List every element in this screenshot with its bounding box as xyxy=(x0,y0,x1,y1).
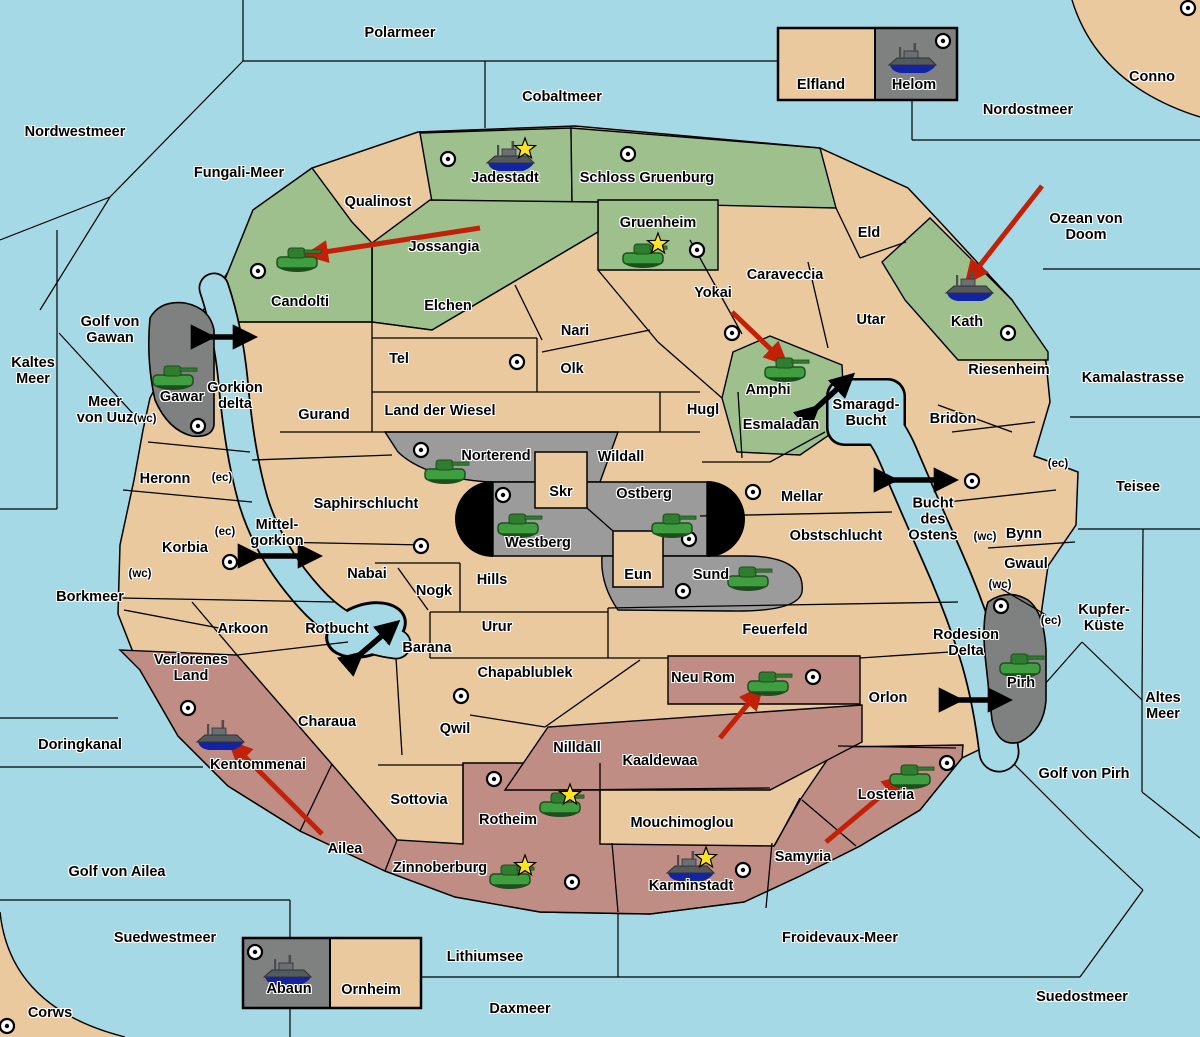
territory-label-esmaladan[interactable]: Esmaladan xyxy=(743,417,820,433)
territory-label-gruenheim[interactable]: Gruenheim xyxy=(620,215,697,231)
territory-label-corws[interactable]: Corws xyxy=(28,1005,72,1021)
territory-label-feuerfeld[interactable]: Feuerfeld xyxy=(742,622,807,638)
sea-zone-label-lithiumsee[interactable]: Lithiumsee xyxy=(447,949,524,965)
sea-zone-label-daxmeer[interactable]: Daxmeer xyxy=(489,1001,550,1017)
territory-label-mouchimoglou[interactable]: Mouchimoglou xyxy=(630,815,733,831)
sea-zone-label-suedostmeer[interactable]: Suedostmeer xyxy=(1036,989,1128,1005)
sea-zone-label-ozean-von-doom[interactable]: Ozean von Doom xyxy=(1029,211,1143,243)
territory-label-neu-rom[interactable]: Neu Rom xyxy=(671,670,735,686)
territory-label-jossangia[interactable]: Jossangia xyxy=(409,239,480,255)
coast-marker: (ec) xyxy=(212,472,232,484)
territory-label-schloss-gruenburg[interactable]: Schloss Gruenburg xyxy=(580,170,715,186)
territory-label-land-der-wiesel[interactable]: Land der Wiesel xyxy=(384,403,495,419)
territory-label-abaun[interactable]: Abaun xyxy=(266,981,311,997)
territory-label-urur[interactable]: Urur xyxy=(482,619,513,635)
territory-label-bridon[interactable]: Bridon xyxy=(930,411,977,427)
city-dot-icon xyxy=(736,863,750,877)
city-dot-icon xyxy=(725,326,739,340)
territory-label-eun[interactable]: Eun xyxy=(624,567,651,583)
territory-label-rotheim[interactable]: Rotheim xyxy=(479,812,537,828)
game-map xyxy=(0,0,1200,1037)
territory-label-losteria[interactable]: Losteria xyxy=(858,787,914,803)
territory-label-caraveccia[interactable]: Caraveccia xyxy=(747,267,824,283)
sea-zone-label-mittel-gorkion[interactable]: Mittel- gorkion xyxy=(250,517,303,549)
territory-label-conno[interactable]: Conno xyxy=(1129,69,1175,85)
territory-label-candolti[interactable]: Candolti xyxy=(271,294,329,310)
city-dot-icon xyxy=(690,243,704,257)
sea-zone-label-fungali-meer[interactable]: Fungali-Meer xyxy=(194,165,284,181)
sea-zone-label-golf-von-gawan[interactable]: Golf von Gawan xyxy=(81,314,140,346)
territory-label-nogk[interactable]: Nogk xyxy=(416,583,452,599)
territory-label-kaaldewaa[interactable]: Kaaldewaa xyxy=(623,753,698,769)
city-dot-icon xyxy=(565,875,579,889)
sea-zone-label-nordostmeer[interactable]: Nordostmeer xyxy=(983,102,1073,118)
sea-zone-label-teisee[interactable]: Teisee xyxy=(1116,479,1160,495)
territory-label-yokai[interactable]: Yokai xyxy=(694,285,732,301)
territory-label-ostberg[interactable]: Ostberg xyxy=(616,486,672,502)
city-dot-icon xyxy=(0,1019,14,1033)
territory-label-sottovia[interactable]: Sottovia xyxy=(390,792,447,808)
territory-label-gawar[interactable]: Gawar xyxy=(160,389,204,405)
territory-label-charaua[interactable]: Charaua xyxy=(298,714,356,730)
city-dot-icon xyxy=(414,539,428,553)
territory-label-hills[interactable]: Hills xyxy=(477,572,508,588)
territory-label-nabai[interactable]: Nabai xyxy=(347,566,387,582)
territory-label-chapablublek[interactable]: Chapablublek xyxy=(477,665,572,681)
city-dot-icon xyxy=(223,555,237,569)
sea-zone-label-rodesion-delta[interactable]: Rodesion Delta xyxy=(933,627,999,659)
territory-label-qwil[interactable]: Qwil xyxy=(440,721,471,737)
city-dot-icon xyxy=(965,474,979,488)
sea-zone-label-nordwestmeer[interactable]: Nordwestmeer xyxy=(25,124,126,140)
territory-label-utar[interactable]: Utar xyxy=(856,312,885,328)
sea-zone-label-borkmeer[interactable]: Borkmeer xyxy=(56,589,124,605)
sea-zone-label-kupfer-küste[interactable]: Kupfer- Küste xyxy=(1078,602,1130,634)
city-dot-icon xyxy=(496,488,510,502)
territory-label-elchen[interactable]: Elchen xyxy=(424,298,472,314)
city-dot-icon xyxy=(1001,326,1015,340)
territory-label-mellar[interactable]: Mellar xyxy=(781,489,823,505)
sea-zone-label-rotbucht[interactable]: Rotbucht xyxy=(305,621,369,637)
sea-zone-label-bucht-des-ostens[interactable]: Bucht des Ostens xyxy=(908,496,957,545)
city-dot-icon xyxy=(621,147,635,161)
city-dot-icon xyxy=(676,584,690,598)
city-dot-icon xyxy=(441,152,455,166)
territory-label-heronn[interactable]: Heronn xyxy=(140,471,191,487)
city-dot-icon xyxy=(746,485,760,499)
territory-label-barana[interactable]: Barana xyxy=(402,640,451,656)
coast-marker: (ec) xyxy=(1048,458,1068,470)
city-dot-icon xyxy=(487,772,501,786)
territory-label-samyria[interactable]: Samyria xyxy=(775,849,831,865)
territory-label-kentommenai[interactable]: Kentommenai xyxy=(210,757,306,773)
territory-label-norterend[interactable]: Norterend xyxy=(461,448,530,464)
city-dot-icon xyxy=(251,264,265,278)
city-dot-icon xyxy=(1181,1,1195,15)
city-dot-icon xyxy=(940,756,954,770)
sea-zone-label-kamalastrasse[interactable]: Kamalastrasse xyxy=(1082,370,1184,386)
sea-zone-label-suedwestmeer[interactable]: Suedwestmeer xyxy=(114,930,216,946)
territory-label-korbia[interactable]: Korbia xyxy=(162,540,208,556)
game-map-stage: PolarmeerNordwestmeerFungali-MeerCobaltm… xyxy=(0,0,1200,1037)
sea-zone-label-froidevaux-meer[interactable]: Froidevaux-Meer xyxy=(782,930,898,946)
city-dot-icon xyxy=(248,945,262,959)
territory-label-orlon[interactable]: Orlon xyxy=(869,690,908,706)
sea-zone-label-polarmeer[interactable]: Polarmeer xyxy=(365,25,436,41)
territory-label-gurand[interactable]: Gurand xyxy=(298,407,350,423)
city-dot-icon xyxy=(454,689,468,703)
city-dot-icon xyxy=(994,599,1008,613)
sea-zone-label-kaltes-meer[interactable]: Kaltes Meer xyxy=(11,355,55,387)
coast-marker: (ec) xyxy=(1041,615,1061,627)
territory-label-sund[interactable]: Sund xyxy=(693,567,729,583)
sea-zone-label-gorkion-delta[interactable]: Gorkion delta xyxy=(207,380,263,412)
territory-label-nari[interactable]: Nari xyxy=(561,323,589,339)
territory-label-eld[interactable]: Eld xyxy=(858,225,881,241)
coast-marker: (wc) xyxy=(989,579,1012,591)
territory-label-ailea[interactable]: Ailea xyxy=(328,841,363,857)
territory-label-ornheim[interactable]: Ornheim xyxy=(341,982,401,998)
coast-marker: (wc) xyxy=(974,531,997,543)
sea-zone-label-smaragd-bucht[interactable]: Smaragd- Bucht xyxy=(833,397,900,429)
territory-label-arkoon[interactable]: Arkoon xyxy=(218,621,269,637)
territory-label-pirh[interactable]: Pirh xyxy=(1007,675,1035,691)
territory-label-olk[interactable]: Olk xyxy=(560,361,583,377)
territory-label-riesenheim[interactable]: Riesenheim xyxy=(968,362,1049,378)
sea-zone-label-golf-von-ailea[interactable]: Golf von Ailea xyxy=(69,864,166,880)
sea-zone-label-doringkanal[interactable]: Doringkanal xyxy=(38,737,122,753)
territory-label-amphi[interactable]: Amphi xyxy=(745,382,790,398)
coast-marker: (ec) xyxy=(215,526,235,538)
territory-label-zinnoberburg[interactable]: Zinnoberburg xyxy=(393,860,487,876)
sea-zone-label-golf-von-pirh[interactable]: Golf von Pirh xyxy=(1038,766,1129,782)
territory-label-bynn[interactable]: Bynn xyxy=(1006,526,1042,542)
territory-label-saphirschlucht[interactable]: Saphirschlucht xyxy=(314,496,419,512)
territory-label-helom[interactable]: Helom xyxy=(892,77,936,93)
territory-label-hugl[interactable]: Hugl xyxy=(687,402,719,418)
territory-label-westberg[interactable]: Westberg xyxy=(505,535,571,551)
sea-zone-label-cobaltmeer[interactable]: Cobaltmeer xyxy=(522,89,602,105)
city-dot-icon xyxy=(181,701,195,715)
city-dot-icon xyxy=(414,443,428,457)
coast-marker: (wc) xyxy=(129,568,152,580)
city-dot-icon xyxy=(191,419,205,433)
territory-label-tel[interactable]: Tel xyxy=(389,351,409,367)
territory-label-wildall[interactable]: Wildall xyxy=(598,449,645,465)
territory-label-nilldall[interactable]: Nilldall xyxy=(553,740,601,756)
territory-label-jadestadt[interactable]: Jadestadt xyxy=(471,170,539,186)
territory-label-gwaul[interactable]: Gwaul xyxy=(1004,556,1048,572)
coast-marker: (wc) xyxy=(134,413,157,425)
territory-label-qualinost[interactable]: Qualinost xyxy=(345,194,412,210)
territory-label-elfland[interactable]: Elfland xyxy=(797,77,845,93)
territory-label-verlorenes-land[interactable]: Verlorenes Land xyxy=(154,652,228,684)
territory-label-karminstadt[interactable]: Karminstadt xyxy=(649,878,734,894)
territory-label-skr[interactable]: Skr xyxy=(549,484,572,500)
sea-zone-label-meer-von-uuz[interactable]: Meer von Uuz xyxy=(77,394,133,426)
city-dot-icon xyxy=(510,355,524,369)
city-dot-icon xyxy=(936,34,950,48)
sea-zone-label-altes-meer[interactable]: Altes Meer xyxy=(1145,690,1180,722)
city-dot-icon xyxy=(806,670,820,684)
territory-label-obstschlucht[interactable]: Obstschlucht xyxy=(790,528,883,544)
territory-label-kath[interactable]: Kath xyxy=(951,314,983,330)
